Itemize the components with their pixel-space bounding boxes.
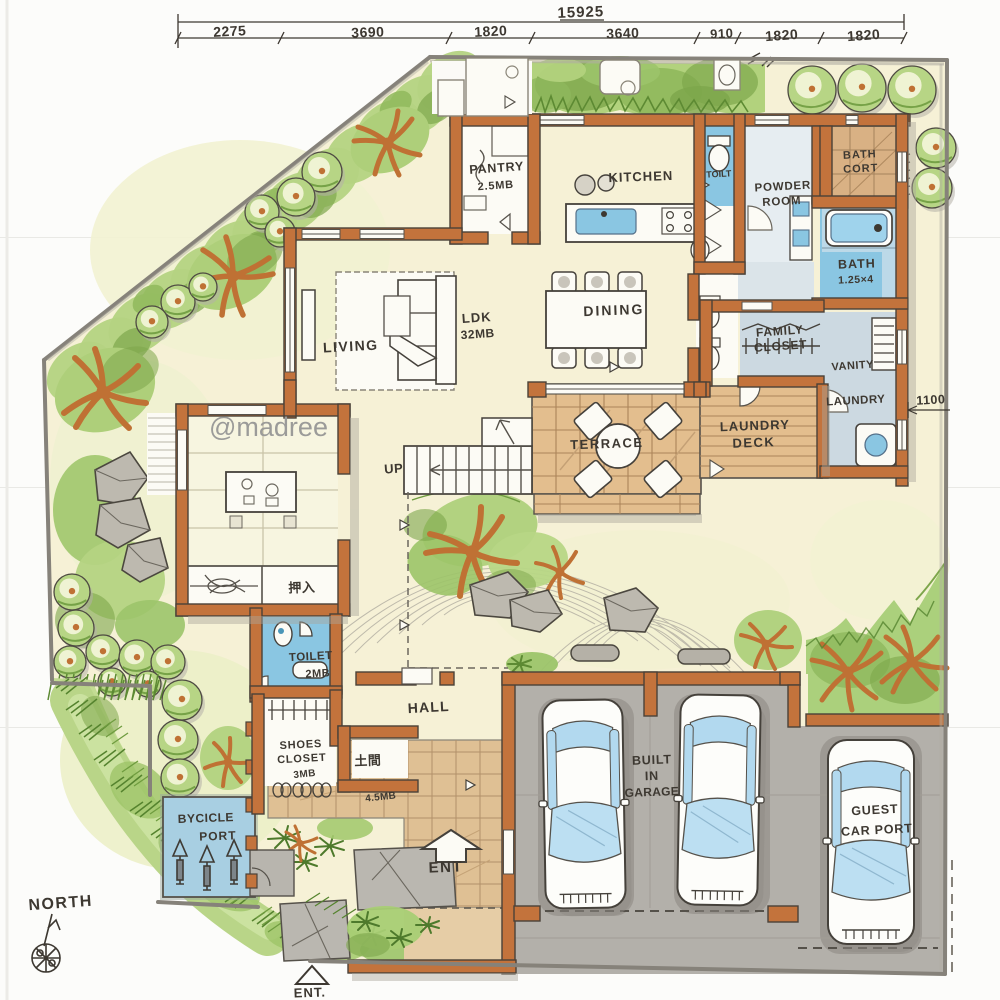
- svg-text:CORT: CORT: [843, 162, 879, 176]
- svg-text:GUEST: GUEST: [851, 802, 899, 818]
- svg-text:910: 910: [710, 25, 734, 41]
- svg-text:BYCICLE: BYCICLE: [178, 810, 235, 826]
- svg-text:PORT: PORT: [199, 828, 237, 843]
- svg-text:1820: 1820: [765, 26, 799, 44]
- svg-text:LIVING: LIVING: [323, 337, 379, 356]
- svg-text:HALL: HALL: [407, 698, 450, 716]
- svg-text:3MB: 3MB: [293, 768, 317, 781]
- svg-text:2.5MB: 2.5MB: [477, 179, 514, 194]
- svg-text:DINING: DINING: [583, 301, 645, 319]
- svg-text:2MB: 2MB: [305, 667, 330, 680]
- svg-text:3640: 3640: [606, 24, 640, 41]
- svg-text:1100: 1100: [916, 392, 946, 408]
- svg-text:押入: 押入: [288, 580, 316, 596]
- svg-text:BATH: BATH: [838, 256, 876, 271]
- svg-text:土間: 土間: [354, 753, 382, 769]
- svg-text:3690: 3690: [351, 23, 385, 40]
- svg-text:TOILT: TOILT: [706, 168, 732, 179]
- svg-text:32MB: 32MB: [460, 326, 495, 342]
- svg-text:1820: 1820: [474, 22, 508, 40]
- svg-text:15925: 15925: [557, 3, 604, 22]
- svg-text:GARAGE: GARAGE: [624, 784, 679, 800]
- svg-text:1.25×4: 1.25×4: [838, 273, 874, 286]
- svg-text:IN: IN: [645, 769, 660, 783]
- svg-text:2275: 2275: [213, 22, 247, 40]
- svg-text:TERRACE: TERRACE: [570, 435, 644, 453]
- svg-text:ENT: ENT: [428, 858, 463, 876]
- svg-text:ROOM: ROOM: [762, 195, 802, 209]
- svg-text:DECK: DECK: [732, 434, 775, 450]
- svg-text:SHOES: SHOES: [279, 738, 322, 752]
- svg-text:LAUNDRY: LAUNDRY: [720, 417, 791, 434]
- svg-text:KITCHEN: KITCHEN: [608, 168, 673, 185]
- svg-text:ENT.: ENT.: [294, 984, 327, 1000]
- svg-text:1820: 1820: [847, 26, 881, 44]
- svg-text:BUILT: BUILT: [632, 752, 672, 767]
- svg-text:UP: UP: [384, 460, 404, 476]
- svg-text:TOILET: TOILET: [289, 650, 333, 664]
- svg-text:LDK: LDK: [461, 309, 492, 326]
- svg-text:@madree: @madree: [209, 412, 328, 442]
- svg-text:BATH: BATH: [843, 148, 877, 162]
